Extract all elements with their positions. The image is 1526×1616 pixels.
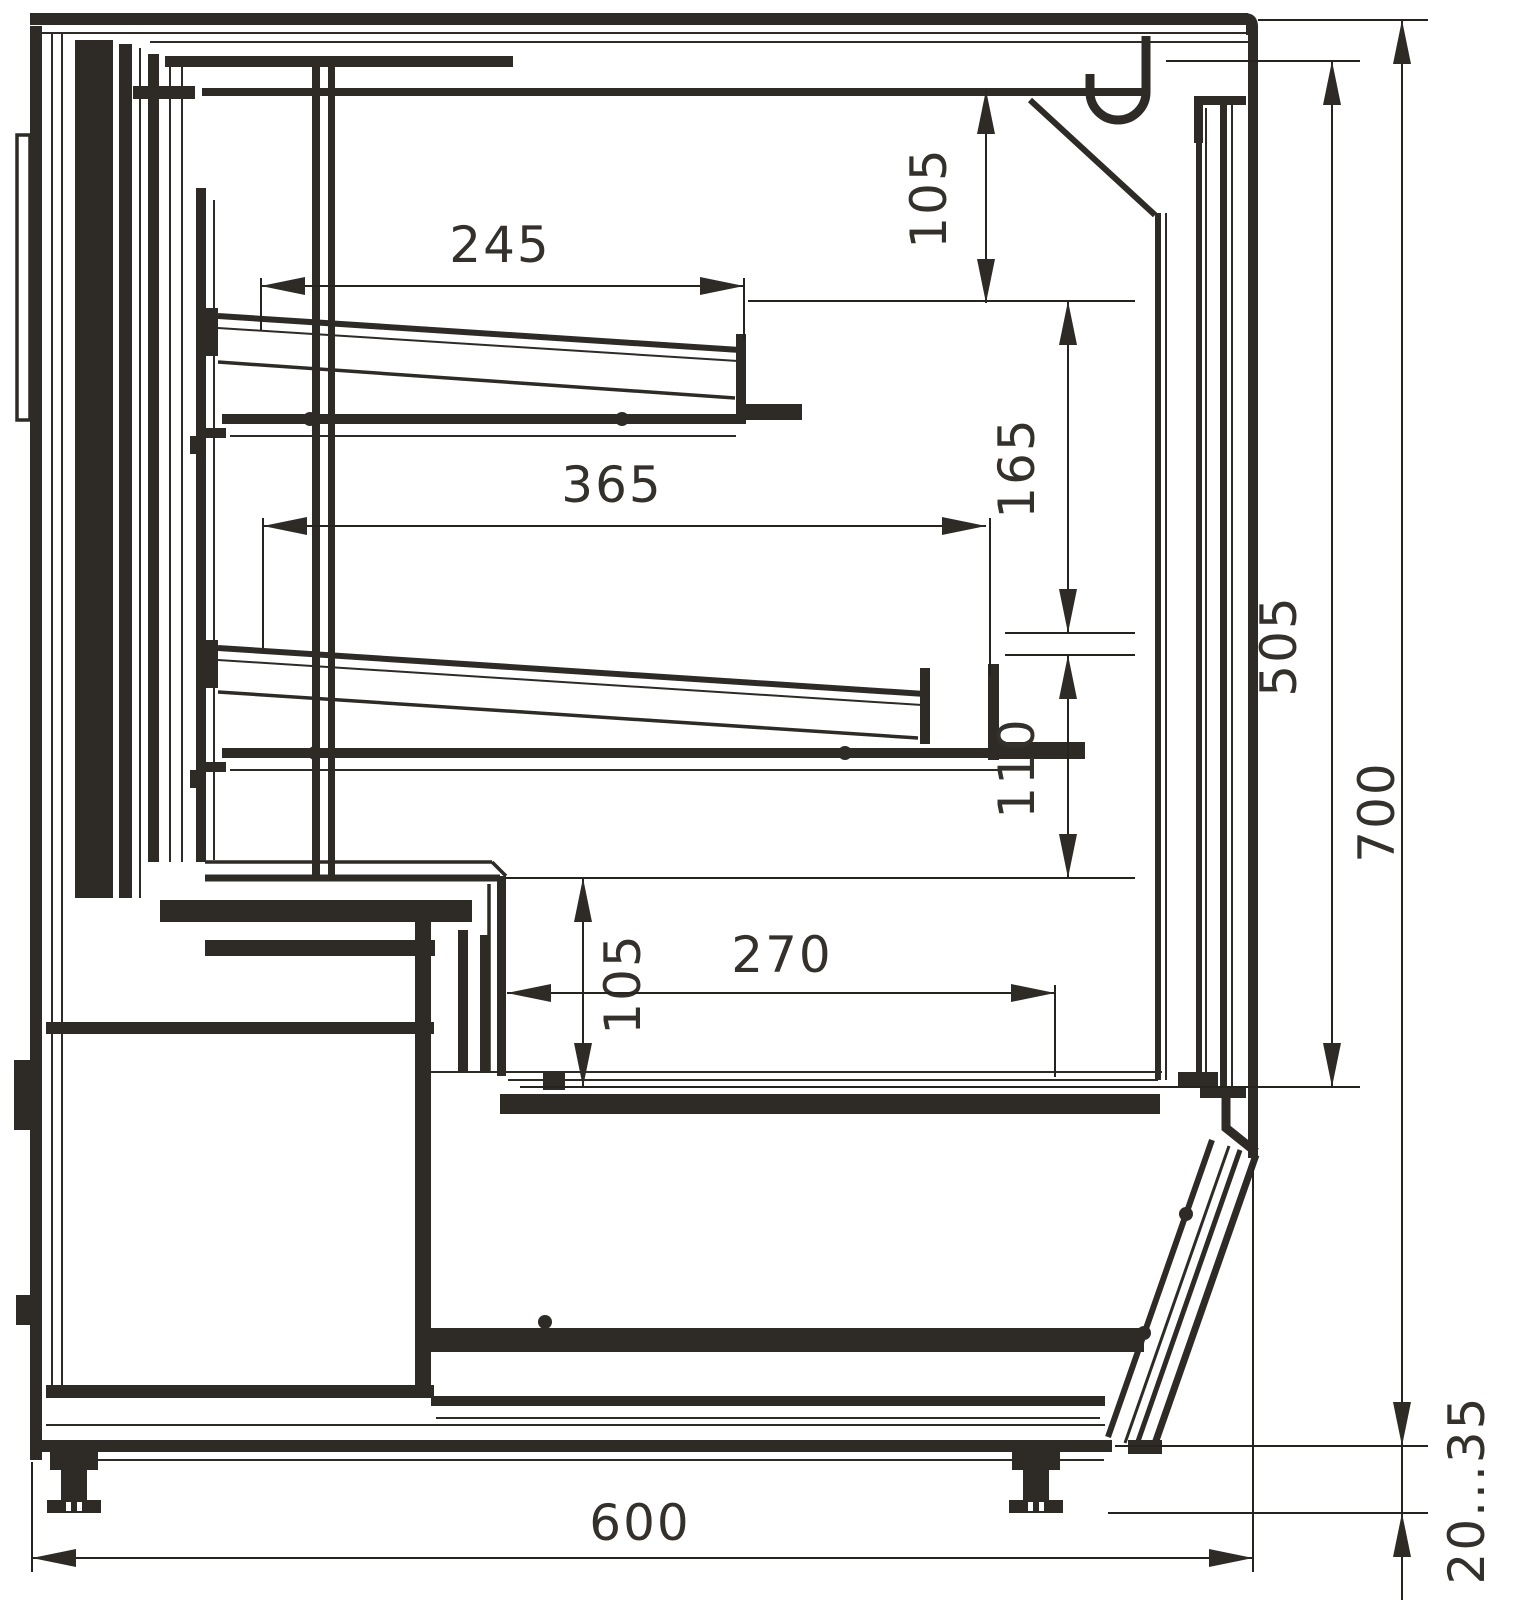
dim-label-700: 700 (1348, 761, 1406, 862)
display-well (431, 1072, 1162, 1418)
dim-middle-shelf-365: 365 (263, 456, 990, 676)
counter-step (160, 862, 506, 1394)
adjustable-foot-right (1009, 1452, 1063, 1513)
display-case-cross-section: 245 365 105 165 110 105 (0, 0, 1526, 1616)
dim-label-505: 505 (1250, 595, 1308, 696)
dim-label-20-35: 20...35 (1438, 1396, 1496, 1585)
dim-well-depth-105: 105 (574, 878, 652, 1087)
dim-label-365: 365 (561, 456, 662, 514)
middle-shelf (190, 640, 1085, 788)
front-glass-stack (1155, 25, 1258, 1158)
lamp-hook-profile (1090, 36, 1146, 120)
dim-label-110: 110 (988, 717, 1046, 818)
dim-overall-depth-600: 600 (32, 1162, 1253, 1572)
dim-label-105-top: 105 (900, 147, 958, 248)
dim-label-245: 245 (449, 216, 550, 274)
dim-label-600: 600 (589, 1494, 690, 1552)
dim-label-165: 165 (988, 417, 1046, 518)
base-plinth (42, 1425, 1112, 1460)
back-wall (17, 26, 335, 1460)
angled-front-glass (1108, 1092, 1256, 1454)
canopy (30, 13, 1258, 215)
dim-label-105-well: 105 (594, 933, 652, 1034)
top-shelf (190, 308, 802, 454)
adjustable-foot-left (47, 1452, 101, 1513)
dim-canopy-clearance-105: 105 (748, 90, 1135, 303)
technical-drawing-page: 245 365 105 165 110 105 (0, 0, 1526, 1616)
dim-shelf-gap-165: 165 (988, 301, 1135, 633)
dim-label-270: 270 (731, 926, 832, 984)
dim-overall-height-700: 700 (1115, 20, 1428, 1446)
machine-compartment (14, 1022, 434, 1398)
dim-foot-range-20-35: 20...35 (1108, 1396, 1496, 1600)
